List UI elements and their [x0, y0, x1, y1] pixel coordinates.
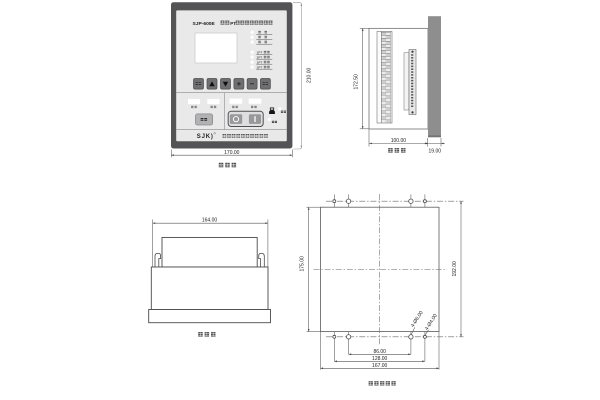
svg-text:175.00: 175.00 — [299, 256, 305, 272]
svg-text:170.00: 170.00 — [224, 150, 240, 156]
svg-text:PT: PT — [230, 21, 236, 26]
svg-text:1PT: 1PT — [257, 51, 263, 55]
svg-text:164.00: 164.00 — [202, 218, 218, 224]
svg-text:86.00: 86.00 — [373, 349, 386, 355]
svg-text:128.00: 128.00 — [372, 356, 388, 362]
svg-text:100.00: 100.00 — [391, 138, 407, 144]
svg-text:19.00: 19.00 — [429, 148, 442, 154]
svg-text:SJP-600E: SJP-600E — [193, 21, 216, 27]
svg-text:192.00: 192.00 — [452, 261, 458, 277]
svg-text:2PT: 2PT — [257, 55, 263, 59]
svg-text:2PT: 2PT — [257, 65, 263, 69]
svg-text:1PT: 1PT — [257, 60, 263, 64]
svg-text:210.00: 210.00 — [307, 67, 313, 83]
svg-text:SJK): SJK) — [197, 134, 214, 140]
svg-text:167.00: 167.00 — [372, 363, 388, 369]
svg-text:172.50: 172.50 — [354, 74, 360, 90]
